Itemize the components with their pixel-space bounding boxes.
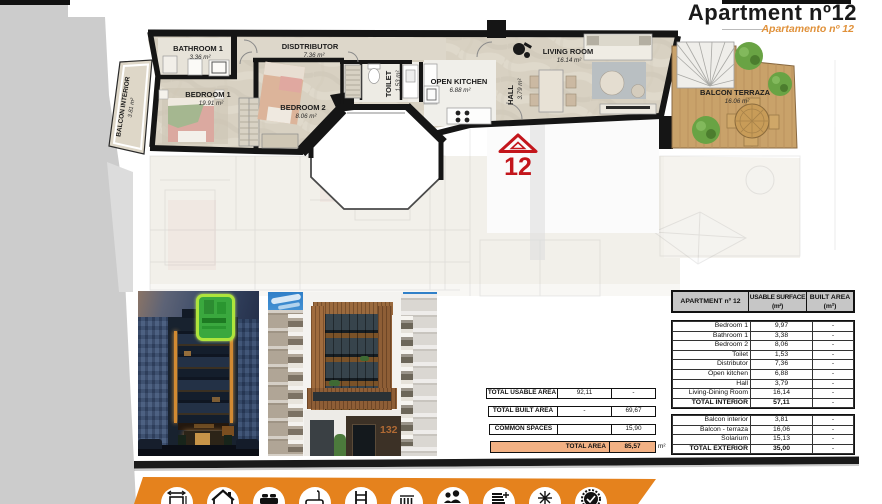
svg-text:3.36 m²: 3.36 m²: [190, 54, 212, 61]
svg-text:BEDROOM 2: BEDROOM 2: [280, 103, 325, 112]
svg-text:BATHROOM 1: BATHROOM 1: [173, 44, 223, 53]
svg-text:HALL: HALL: [506, 85, 515, 105]
svg-text:16.14 m²: 16.14 m²: [557, 57, 582, 64]
svg-text:1.53 m²: 1.53 m²: [395, 70, 402, 92]
svg-text:19.91 m²: 19.91 m²: [199, 100, 224, 107]
svg-text:12: 12: [504, 153, 532, 181]
svg-text:16.06 m²: 16.06 m²: [725, 98, 750, 105]
svg-text:6.88 m²: 6.88 m²: [450, 87, 472, 94]
svg-text:DISDTRIBUTOR: DISDTRIBUTOR: [282, 42, 339, 51]
svg-text:LIVING ROOM: LIVING ROOM: [543, 47, 593, 56]
svg-text:TOILET: TOILET: [384, 70, 393, 97]
svg-text:8.06 m²: 8.06 m²: [296, 113, 318, 120]
svg-text:BALCON TERRAZA: BALCON TERRAZA: [700, 88, 771, 97]
svg-text:BEDROOM 1: BEDROOM 1: [185, 90, 230, 99]
svg-text:OPEN KITCHEN: OPEN KITCHEN: [431, 77, 488, 86]
svg-text:7.36 m²: 7.36 m²: [304, 52, 326, 59]
svg-text:3.79 m²: 3.79 m²: [517, 78, 524, 100]
